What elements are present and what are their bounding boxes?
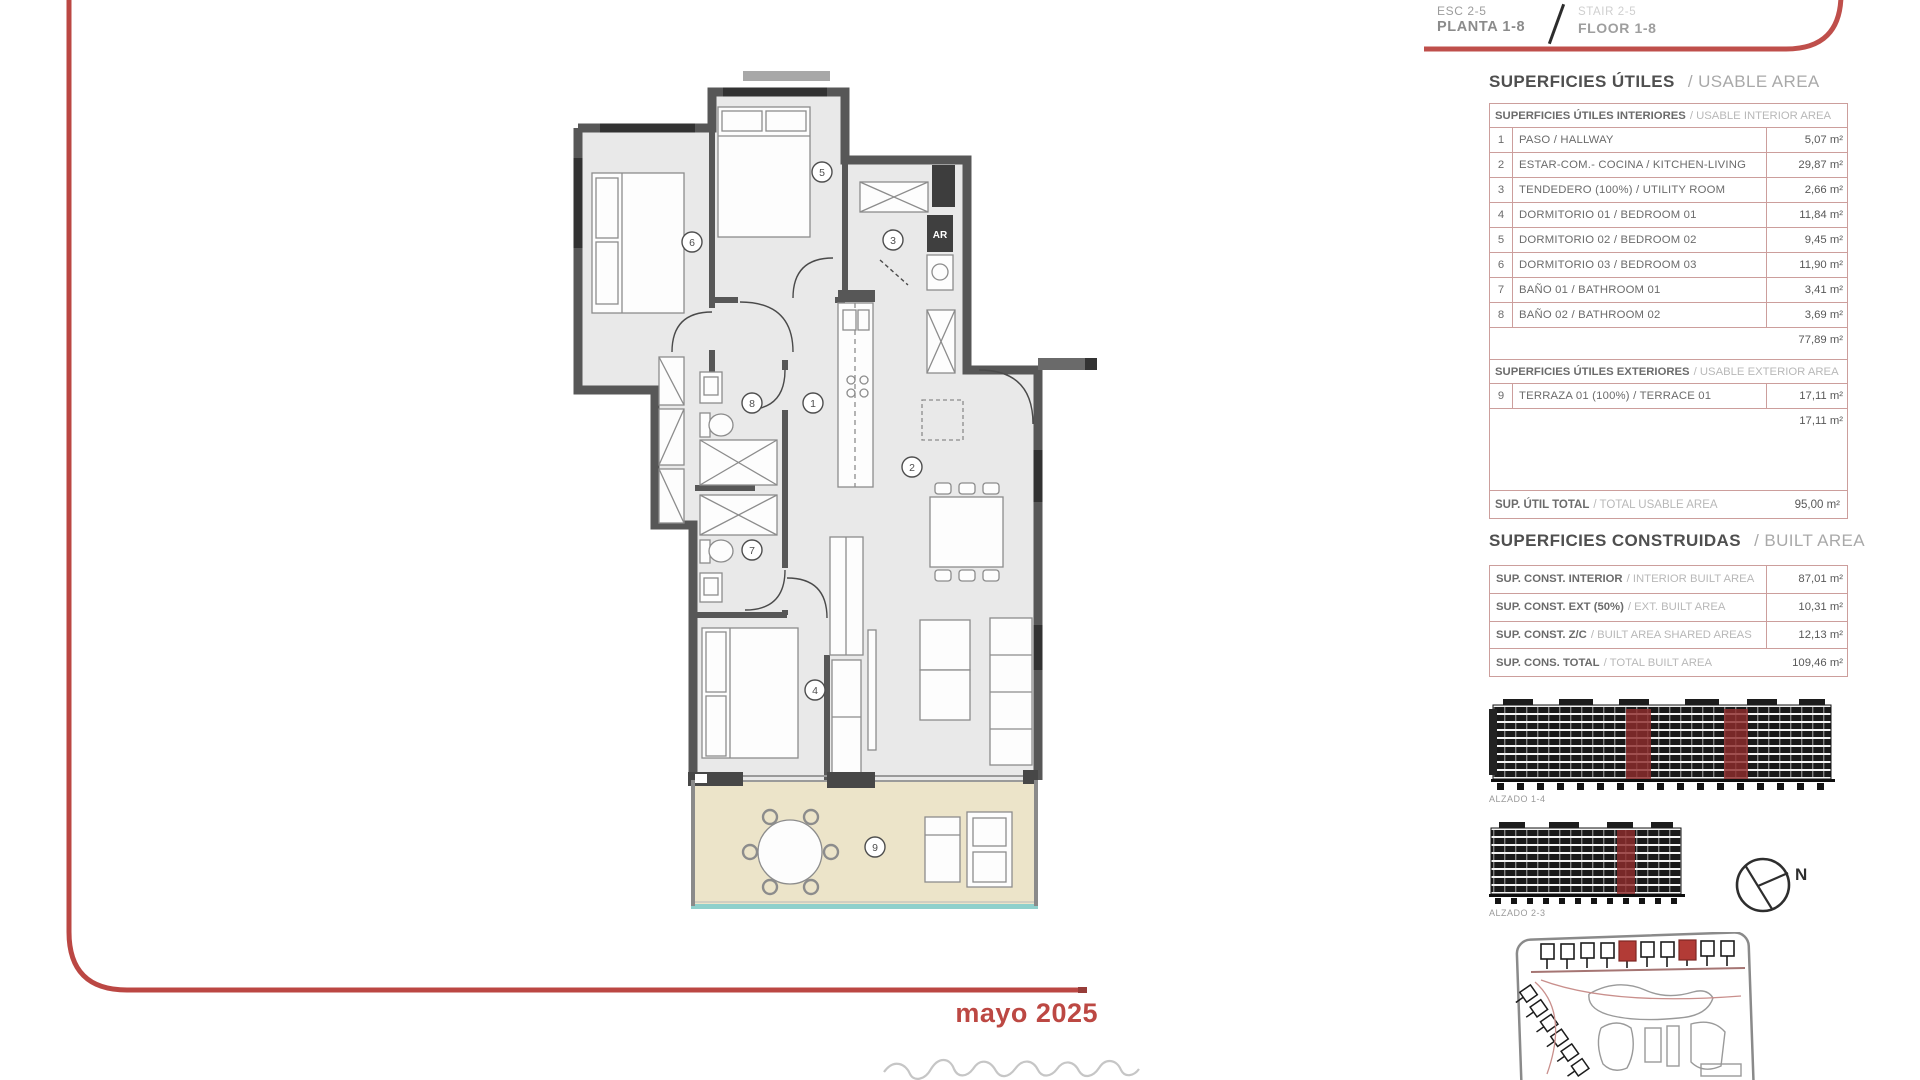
usable-total-row: SUP. ÚTIL TOTAL / TOTAL USABLE AREA 95,0… [1490, 490, 1847, 518]
built-area-table: SUP. CONST. INTERIOR/ INTERIOR BUILT ARE… [1489, 565, 1848, 677]
upper-ledge [743, 71, 830, 81]
svg-text:1: 1 [810, 398, 816, 410]
table-row: 8BAÑO 02 / BATHROOM 023,69 m² [1490, 303, 1847, 328]
site-plan [1505, 932, 1805, 1080]
exterior-header-en: / USABLE EXTERIOR AREA [1694, 366, 1839, 378]
row-area: 2,66 m² [1766, 178, 1847, 202]
terrace-light [695, 774, 707, 783]
built-total-row: SUP. CONS. TOTAL/ TOTAL BUILT AREA 109,4… [1490, 649, 1847, 676]
table-row: 7BAÑO 01 / BATHROOM 013,41 m² [1490, 278, 1847, 303]
row-label: SUP. CONST. Z/C/ BUILT AREA SHARED AREAS [1490, 622, 1766, 649]
row-name: ESTAR-COM.- COCINA / KITCHEN-LIVING [1513, 153, 1766, 177]
plan-sheet: { "title_block": { "esc": "ESC 2-5", "pl… [0, 0, 1920, 1080]
row-area: 87,01 m² [1766, 566, 1847, 593]
room-circle-6: 6 [682, 232, 702, 252]
row-area: 12,13 m² [1766, 622, 1847, 649]
row-name: TENDEDERO (100%) / UTILITY ROOM [1513, 178, 1766, 202]
svg-text:2: 2 [909, 462, 915, 474]
row-num: 8 [1490, 303, 1513, 327]
room-circle-1: 1 [803, 393, 823, 413]
row-area: 17,11 m² [1766, 384, 1847, 408]
table-row: SUP. CONST. EXT (50%)/ EXT. BUILT AREA 1… [1490, 594, 1847, 622]
row-label: SUP. CONST. EXT (50%)/ EXT. BUILT AREA [1490, 594, 1766, 621]
elevation-2-drawing [1489, 820, 1689, 906]
row-name: DORMITORIO 02 / BEDROOM 02 [1513, 228, 1766, 252]
elevation-1-label: ALZADO 1-4 [1489, 794, 1546, 804]
spacer [1490, 433, 1847, 490]
party-wall-end [1085, 358, 1097, 370]
stair-label: STAIR 2-5 [1578, 6, 1636, 18]
exterior-header-es: SUPERFICIES ÚTILES EXTERIORES [1495, 366, 1690, 378]
row-num: 4 [1490, 203, 1513, 227]
usable-area-title-en: / USABLE AREA [1688, 72, 1820, 91]
interior-header: SUPERFICIES ÚTILES INTERIORES / USABLE I… [1490, 104, 1847, 128]
row-area: 3,69 m² [1766, 303, 1847, 327]
north-label: N [1795, 865, 1807, 884]
svg-text:9: 9 [872, 842, 878, 854]
svg-text:8: 8 [749, 398, 755, 410]
room-circle-2: 2 [902, 457, 922, 477]
row-area: 5,07 m² [1766, 128, 1847, 152]
row-area: 29,87 m² [1766, 153, 1847, 177]
built-area-title-en: / BUILT AREA [1754, 531, 1865, 550]
row-name: BAÑO 02 / BATHROOM 02 [1513, 303, 1766, 327]
row-num: 6 [1490, 253, 1513, 277]
table-row: 1PASO / HALLWAY5,07 m² [1490, 128, 1847, 153]
signature-scribble [884, 1060, 1139, 1079]
svg-text:5: 5 [819, 167, 825, 179]
usable-area-title: SUPERFICIES ÚTILES / USABLE AREA [1489, 72, 1820, 92]
interior-subtotal: 77,89 m² [1490, 328, 1847, 352]
usable-total-en: / TOTAL USABLE AREA [1593, 499, 1717, 511]
row-area: 3,41 m² [1766, 278, 1847, 302]
room-circle-7: 7 [742, 540, 762, 560]
row-label-es: SUP. CONST. INTERIOR [1496, 573, 1623, 585]
row-label-es: SUP. CONST. Z/C [1496, 629, 1587, 641]
svg-text:6: 6 [689, 237, 695, 249]
table-row: 3TENDEDERO (100%) / UTILITY ROOM2,66 m² [1490, 178, 1847, 203]
row-label-en: / BUILT AREA SHARED AREAS [1591, 629, 1752, 641]
room-circle-3: 3 [883, 230, 903, 250]
row-label: SUP. CONST. INTERIOR/ INTERIOR BUILT ARE… [1490, 566, 1766, 593]
ar-label: AR [933, 230, 948, 241]
row-name: DORMITORIO 01 / BEDROOM 01 [1513, 203, 1766, 227]
table-row: 2ESTAR-COM.- COCINA / KITCHEN-LIVING29,8… [1490, 153, 1847, 178]
floor-label: FLOOR 1-8 [1578, 20, 1657, 36]
row-name: TERRAZA 01 (100%) / TERRACE 01 [1513, 384, 1766, 408]
table-row: 9TERRAZA 01 (100%) / TERRACE 0117,11 m² [1490, 384, 1847, 409]
floor-plan: AR 1 2 3 4 5 6 7 8 9 [555, 70, 1107, 938]
table-row: SUP. CONST. INTERIOR/ INTERIOR BUILT ARE… [1490, 566, 1847, 594]
row-num: 5 [1490, 228, 1513, 252]
svg-text:4: 4 [812, 685, 818, 697]
exterior-subtotal: 17,11 m² [1490, 409, 1847, 433]
elevation-2-label: ALZADO 2-3 [1489, 908, 1546, 918]
row-name: DORMITORIO 03 / BEDROOM 03 [1513, 253, 1766, 277]
built-total-value: 109,46 m² [1767, 649, 1847, 676]
svg-text:3: 3 [890, 235, 896, 247]
row-label-en: / INTERIOR BUILT AREA [1627, 573, 1755, 585]
row-area: 9,45 m² [1766, 228, 1847, 252]
esc-label: ESC 2-5 [1437, 4, 1487, 18]
built-total-en: / TOTAL BUILT AREA [1604, 657, 1712, 669]
pillar [932, 165, 955, 207]
room-circle-4: 4 [805, 680, 825, 700]
exterior-header: SUPERFICIES ÚTILES EXTERIORES / USABLE E… [1490, 359, 1847, 384]
built-area-title-es: SUPERFICIES CONSTRUIDAS [1489, 531, 1741, 550]
svg-text:7: 7 [749, 545, 755, 557]
interior-header-es: SUPERFICIES ÚTILES INTERIORES [1495, 110, 1686, 122]
planta-label: PLANTA 1-8 [1437, 19, 1525, 35]
title-block: ESC 2-5 PLANTA 1-8 STAIR 2-5 FLOOR 1-8 [1437, 3, 1737, 47]
row-label-en: / EXT. BUILT AREA [1628, 601, 1726, 613]
table-row: SUP. CONST. Z/C/ BUILT AREA SHARED AREAS… [1490, 622, 1847, 650]
row-label: SUP. CONS. TOTAL/ TOTAL BUILT AREA [1490, 649, 1767, 676]
row-num: 3 [1490, 178, 1513, 202]
room-circle-5: 5 [812, 162, 832, 182]
table-row: 6DORMITORIO 03 / BEDROOM 0311,90 m² [1490, 253, 1847, 278]
row-area: 11,90 m² [1766, 253, 1847, 277]
row-num: 7 [1490, 278, 1513, 302]
row-num: 1 [1490, 128, 1513, 152]
highlighted-unit [1619, 941, 1636, 961]
row-area: 11,84 m² [1766, 203, 1847, 227]
row-name: BAÑO 01 / BATHROOM 01 [1513, 278, 1766, 302]
highlighted-unit [1679, 940, 1696, 960]
row-num: 9 [1490, 384, 1513, 408]
date-label: mayo 2025 [860, 998, 1098, 1029]
interior-header-en: / USABLE INTERIOR AREA [1690, 110, 1831, 122]
north-compass: N [1725, 845, 1835, 925]
room-circle-8: 8 [742, 393, 762, 413]
table-row: 4DORMITORIO 01 / BEDROOM 0111,84 m² [1490, 203, 1847, 228]
wall-piece [838, 290, 875, 302]
usable-area-table: SUPERFICIES ÚTILES INTERIORES / USABLE I… [1489, 103, 1848, 519]
elevation-1-drawing [1489, 697, 1839, 793]
spacer [1490, 352, 1847, 359]
row-name: PASO / HALLWAY [1513, 128, 1766, 152]
row-area: 10,31 m² [1766, 594, 1847, 621]
row-label-es: SUP. CONST. EXT (50%) [1496, 601, 1624, 613]
terrace-wall [827, 772, 875, 788]
table-row: 5DORMITORIO 02 / BEDROOM 029,45 m² [1490, 228, 1847, 253]
terrace-glass-balustrade [691, 904, 1038, 909]
usable-total-es: SUP. ÚTIL TOTAL [1495, 499, 1589, 511]
built-area-title: SUPERFICIES CONSTRUIDAS / BUILT AREA [1489, 531, 1865, 551]
usable-total-value: 95,00 m² [1795, 499, 1842, 511]
usable-area-title-es: SUPERFICIES ÚTILES [1489, 72, 1675, 91]
row-num: 2 [1490, 153, 1513, 177]
slash-divider [1548, 4, 1565, 44]
built-total-es: SUP. CONS. TOTAL [1496, 657, 1600, 669]
room-circle-9: 9 [865, 837, 885, 857]
